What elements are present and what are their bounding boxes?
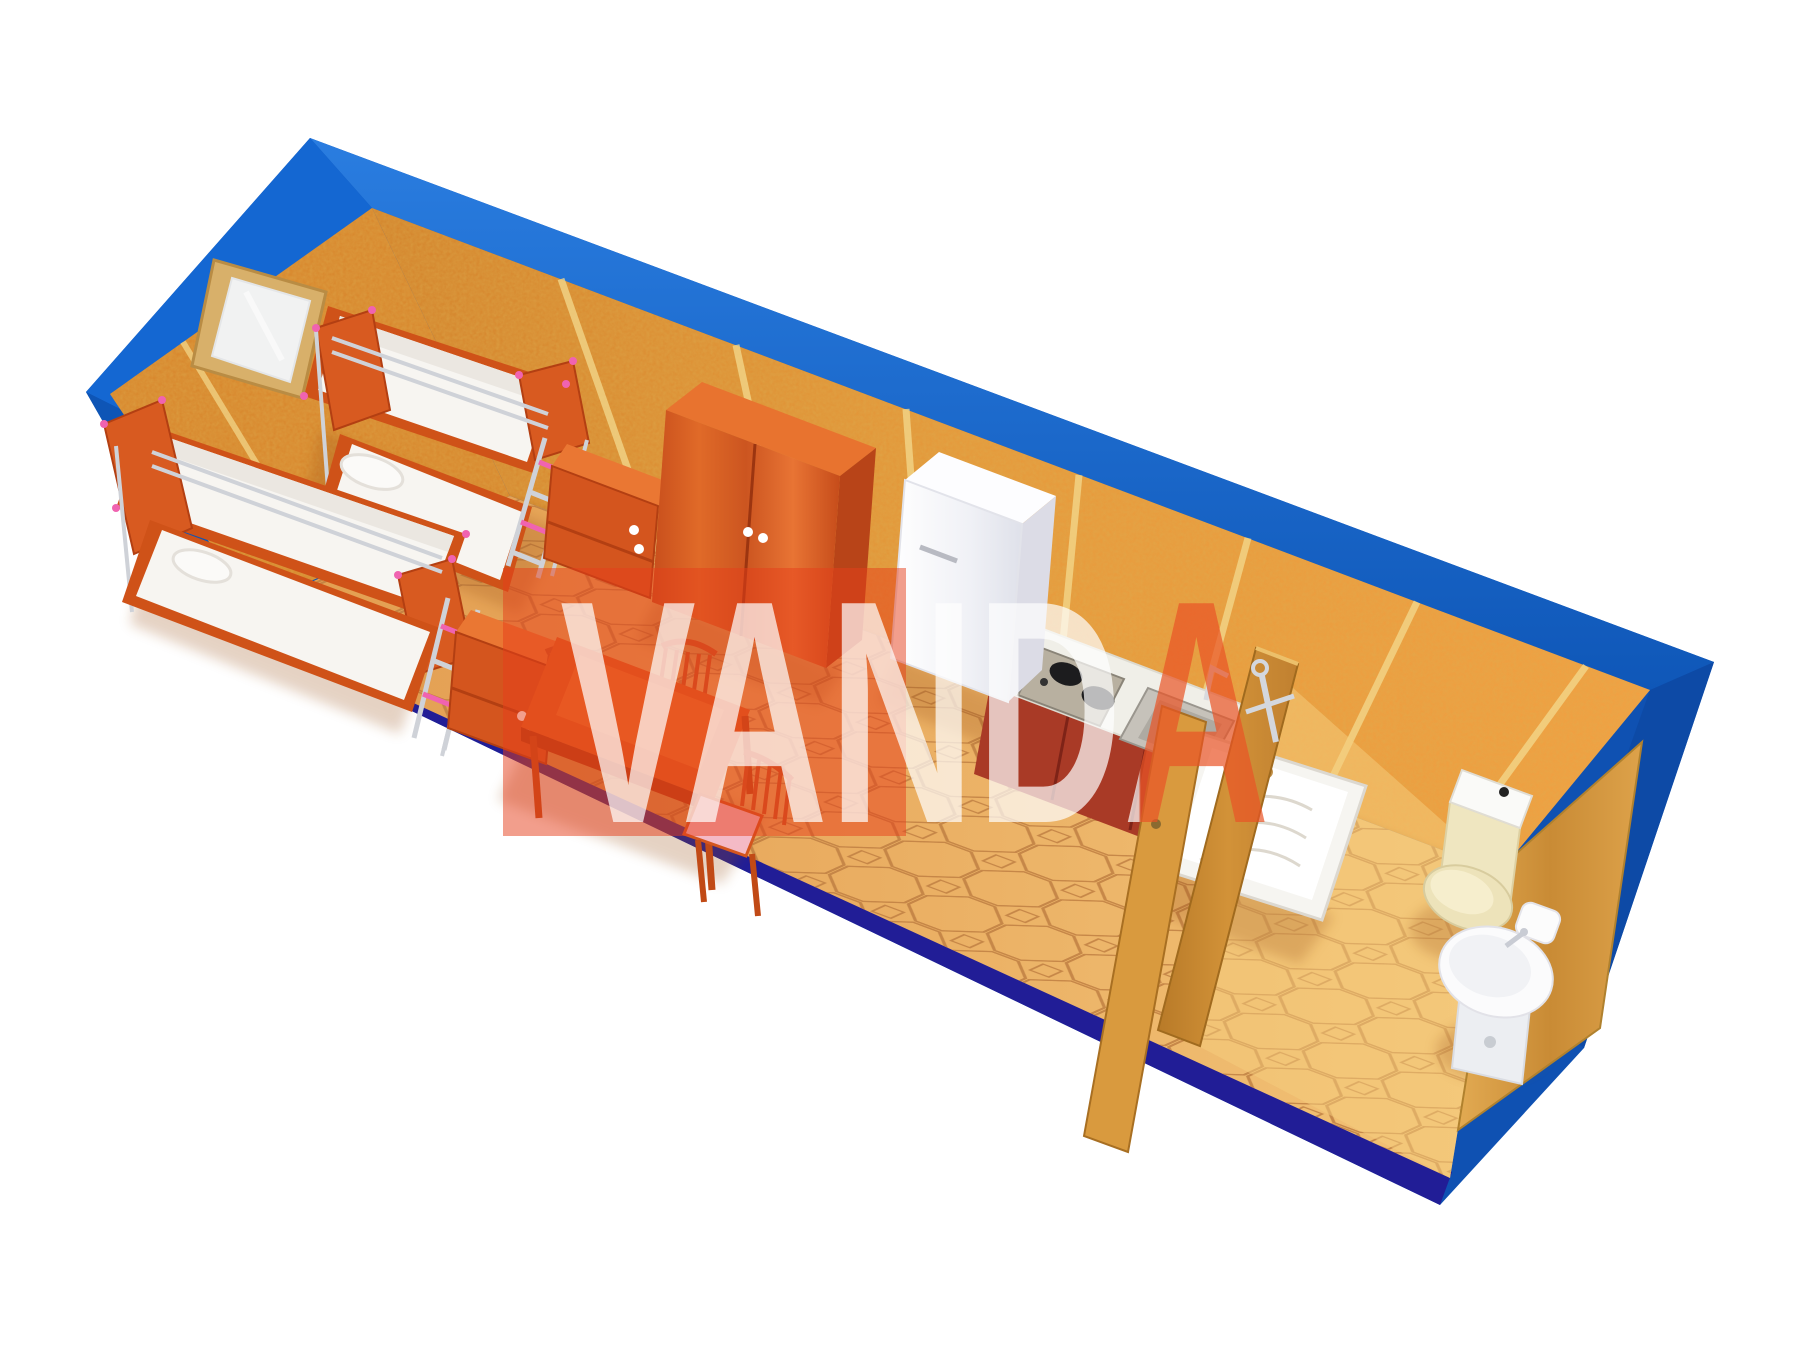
container-house-render: VANDA [0, 0, 1800, 1350]
render-canvas: VANDA [0, 0, 1800, 1350]
watermark: VANDA [503, 535, 1270, 890]
watermark-text: VANDA [560, 535, 1270, 890]
flush-button [1499, 787, 1509, 797]
